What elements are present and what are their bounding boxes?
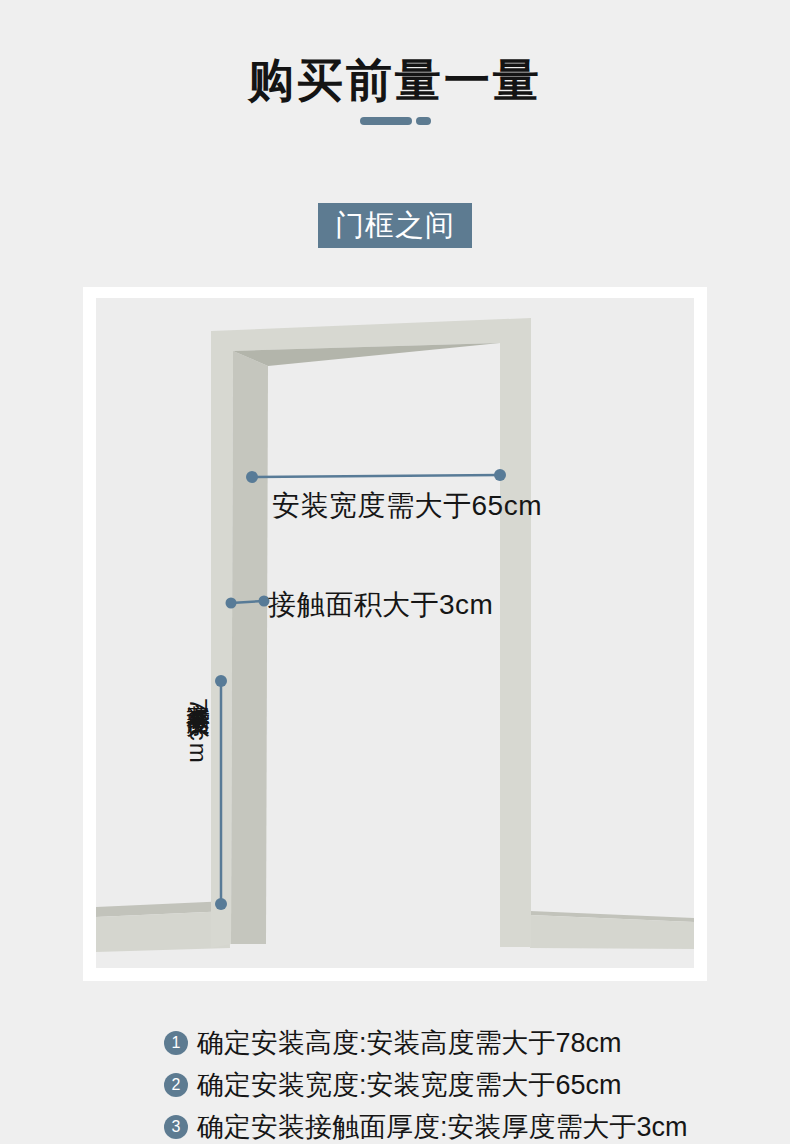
measure-dot bbox=[215, 675, 227, 687]
page-title: 购买前量一量 bbox=[0, 50, 790, 112]
height-measure-label: 安装高度需大于78cm bbox=[182, 684, 214, 924]
step-item: 1 确定安装高度:安装高度需大于78cm bbox=[164, 1028, 688, 1058]
width-measure-label: 安装宽度需大于65cm bbox=[272, 487, 542, 525]
measure-dot bbox=[494, 469, 506, 481]
contact-measure-label: 接触面积大于3cm bbox=[268, 586, 493, 624]
measure-line-width bbox=[252, 475, 500, 477]
product-measure-infographic: { "theme": { "page-bg": "#efefef", "card… bbox=[0, 0, 790, 1144]
measure-dot bbox=[215, 898, 227, 910]
title-underline-decoration bbox=[360, 117, 431, 125]
step-number-badge: 3 bbox=[164, 1115, 188, 1139]
step-item: 2 确定安装宽度:安装宽度需大于65cm bbox=[164, 1070, 688, 1100]
underline-bar bbox=[360, 117, 412, 125]
measure-dot bbox=[246, 471, 258, 483]
section-label: 门框之间 bbox=[318, 203, 472, 248]
underline-dot bbox=[416, 117, 431, 125]
steps-list: 1 确定安装高度:安装高度需大于78cm 2 确定安装宽度:安装宽度需大于65c… bbox=[164, 1028, 688, 1144]
step-text: 确定安装宽度:安装宽度需大于65cm bbox=[197, 1070, 622, 1100]
step-text: 确定安装高度:安装高度需大于78cm bbox=[197, 1028, 622, 1058]
step-item: 3 确定安装接触面厚度:安装厚度需大于3cm bbox=[164, 1112, 688, 1142]
step-number-badge: 1 bbox=[164, 1031, 188, 1055]
door-frame-inner-side-face bbox=[231, 351, 268, 944]
diagram-card: 安装宽度需大于65cm 接触面积大于3cm 安装高度需大于78cm bbox=[83, 287, 707, 981]
step-number-badge: 2 bbox=[164, 1073, 188, 1097]
measure-dot bbox=[226, 598, 237, 609]
diagram-panel: 安装宽度需大于65cm 接触面积大于3cm 安装高度需大于78cm bbox=[96, 298, 694, 968]
step-text: 确定安装接触面厚度:安装厚度需大于3cm bbox=[197, 1112, 688, 1142]
